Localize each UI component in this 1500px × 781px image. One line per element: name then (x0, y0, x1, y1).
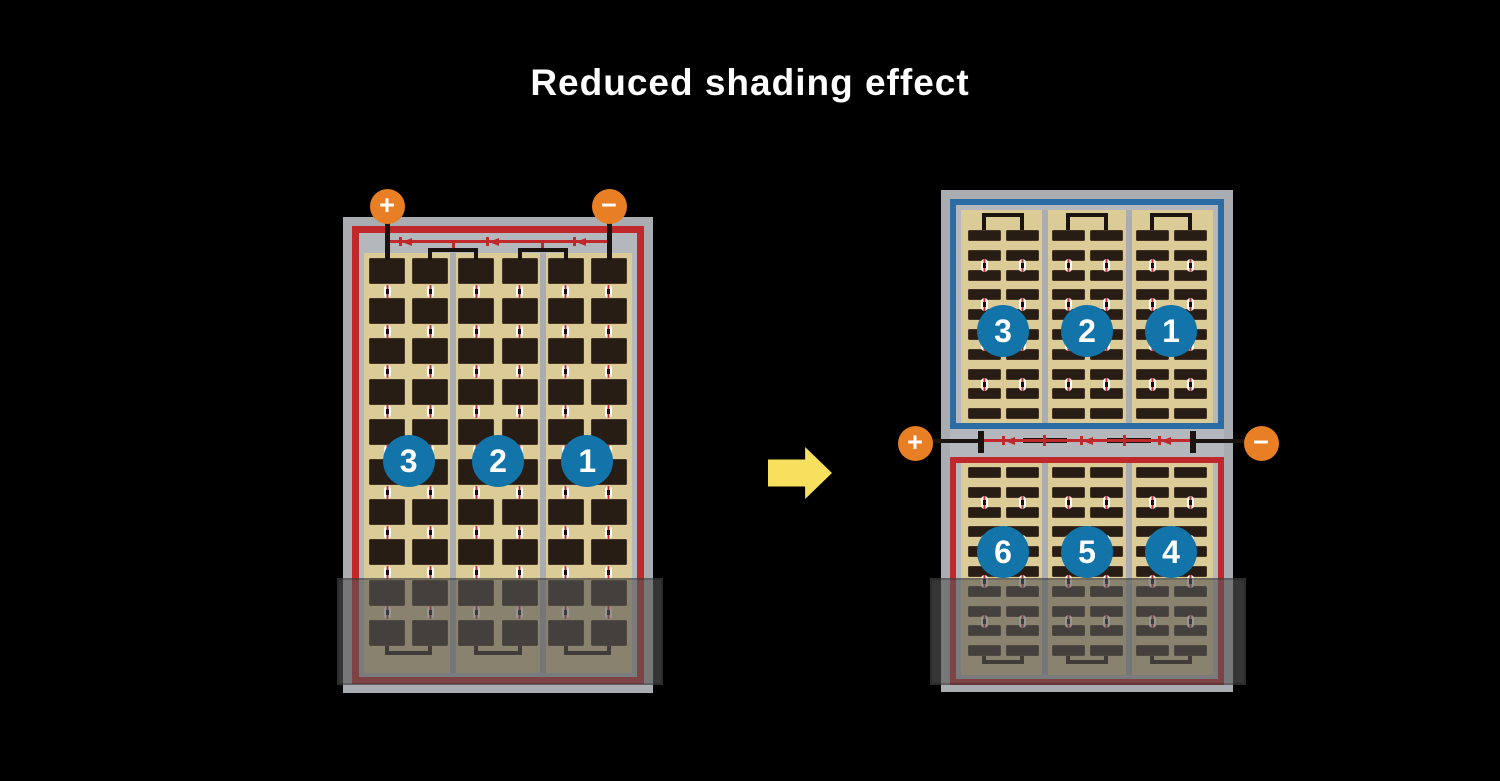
connector-core (1151, 500, 1154, 505)
solar-cell (412, 539, 448, 565)
cell-connector-icon (384, 486, 391, 499)
solar-cell (591, 379, 627, 405)
cell-connector-icon (562, 325, 569, 338)
cell-connector-icon (473, 486, 480, 499)
connector-core (1105, 382, 1108, 387)
busbar-top-bridge (1066, 213, 1108, 217)
connector-core (429, 530, 432, 535)
solar-cell (548, 338, 584, 364)
connector-core (429, 369, 432, 374)
connector-core (475, 369, 478, 374)
solar-cell (369, 499, 405, 525)
cell-connector-icon (1103, 496, 1110, 509)
solar-cell (1052, 408, 1085, 419)
cell-connector-icon (384, 325, 391, 338)
diode-triangle (576, 238, 586, 246)
connector-core (1189, 382, 1192, 387)
connector-core (429, 329, 432, 334)
connector-core (1189, 500, 1192, 505)
cell-connector-icon (562, 285, 569, 298)
solar-cell (1006, 408, 1039, 419)
solar-cell (548, 298, 584, 324)
negative-terminal-icon: − (1244, 426, 1279, 461)
cell-connector-icon (1065, 378, 1072, 391)
connector-core (1067, 302, 1070, 307)
cell-connector-icon (384, 285, 391, 298)
page-title: Reduced shading effect (0, 62, 1500, 104)
cell-connector-icon (516, 405, 523, 418)
solar-cell (502, 298, 538, 324)
cell-connector-icon (384, 405, 391, 418)
busbar-top-bridge-leg (428, 248, 432, 260)
cell-connector-icon (1065, 496, 1072, 509)
string-number-badge: 1 (1145, 305, 1197, 357)
solar-cell (502, 258, 538, 284)
cell-connector-icon (1103, 298, 1110, 311)
connector-core (1067, 263, 1070, 268)
negative-terminal-icon: − (592, 189, 627, 224)
cell-connector-icon (981, 259, 988, 272)
connector-core (607, 490, 610, 495)
string-number-badge: 5 (1061, 526, 1113, 578)
connector-core (564, 329, 567, 334)
connector-core (518, 369, 521, 374)
string-number-badge: 3 (383, 435, 435, 487)
positive-terminal-icon: + (370, 189, 405, 224)
connector-core (386, 530, 389, 535)
connector-core (475, 570, 478, 575)
connector-core (386, 289, 389, 294)
connector-core (386, 570, 389, 575)
solar-cell (1136, 467, 1169, 478)
busbar-top-bridge-leg (518, 248, 522, 260)
solar-cell (591, 338, 627, 364)
shading-overlay (930, 578, 1246, 685)
cell-connector-icon (1019, 496, 1026, 509)
connector-core (475, 289, 478, 294)
cell-connector-icon (516, 285, 523, 298)
cell-connector-icon (1019, 378, 1026, 391)
solar-cell (1174, 408, 1207, 419)
junction-end-bar (1190, 431, 1196, 453)
solar-cell (412, 298, 448, 324)
solar-cell (968, 467, 1001, 478)
solar-cell (458, 539, 494, 565)
string-number-badge: 1 (561, 435, 613, 487)
solar-cell (548, 499, 584, 525)
cell-connector-icon (1187, 496, 1194, 509)
solar-cell (369, 258, 405, 284)
cell-connector-icon (1019, 259, 1026, 272)
connector-core (983, 302, 986, 307)
connector-core (429, 409, 432, 414)
connector-core (1189, 263, 1192, 268)
connector-core (1105, 263, 1108, 268)
terminal-lead (930, 439, 982, 443)
solar-cell (369, 379, 405, 405)
solar-cell (1174, 230, 1207, 241)
diode-triangle (1005, 437, 1015, 445)
cell-connector-icon (981, 378, 988, 391)
connector-core (386, 329, 389, 334)
cell-connector-icon (516, 486, 523, 499)
busbar-top-bridge-leg (474, 248, 478, 260)
busbar-top-bridge-leg (564, 248, 568, 260)
connector-core (1151, 263, 1154, 268)
solar-cell (458, 298, 494, 324)
connector-core (475, 329, 478, 334)
solar-cell (458, 258, 494, 284)
cell-connector-icon (981, 496, 988, 509)
connector-core (1151, 302, 1154, 307)
solar-cell (1136, 230, 1169, 241)
connector-core (607, 369, 610, 374)
connector-core (564, 369, 567, 374)
cell-connector-icon (1065, 259, 1072, 272)
cell-connector-icon (605, 486, 612, 499)
diode-triangle (402, 238, 412, 246)
busbar-top-bridge (1150, 213, 1192, 217)
connector-core (564, 530, 567, 535)
solar-cell (412, 258, 448, 284)
cell-connector-icon (1019, 298, 1026, 311)
cell-connector-icon (516, 325, 523, 338)
connector-core (564, 409, 567, 414)
solar-cell (968, 230, 1001, 241)
cell-connector-icon (1187, 298, 1194, 311)
solar-cell (591, 539, 627, 565)
cell-connector-icon (473, 365, 480, 378)
cell-connector-icon (1149, 378, 1156, 391)
reduced-shading-diagram: Reduced shading effect 321+− 321654+− (0, 0, 1500, 781)
cell-connector-icon (605, 325, 612, 338)
diode-triangle (489, 238, 499, 246)
connector-core (983, 263, 986, 268)
solar-cell (1090, 230, 1123, 241)
cell-connector-icon (427, 405, 434, 418)
cell-connector-icon (516, 526, 523, 539)
connector-core (386, 490, 389, 495)
cell-connector-icon (473, 526, 480, 539)
diode-triangle (1083, 437, 1093, 445)
cell-connector-icon (1187, 259, 1194, 272)
connector-core (475, 409, 478, 414)
cell-connector-icon (473, 285, 480, 298)
solar-cell (1006, 467, 1039, 478)
connector-core (983, 500, 986, 505)
solar-cell (1006, 230, 1039, 241)
connector-core (518, 530, 521, 535)
cell-connector-icon (562, 365, 569, 378)
connector-core (564, 570, 567, 575)
connector-core (518, 289, 521, 294)
solar-cell (1174, 467, 1207, 478)
connector-core (1105, 500, 1108, 505)
cell-connector-icon (384, 365, 391, 378)
bypass-diode-icon (399, 237, 412, 246)
positive-terminal-icon: + (898, 426, 933, 461)
cell-connector-icon (1187, 378, 1194, 391)
string-number-badge: 2 (472, 435, 524, 487)
terminal-lead (385, 223, 390, 260)
solar-cell (369, 298, 405, 324)
cell-connector-icon (605, 365, 612, 378)
connector-core (983, 382, 986, 387)
solar-cell (1052, 467, 1085, 478)
string-number-badge: 6 (977, 526, 1029, 578)
cell-connector-icon (473, 325, 480, 338)
cell-connector-icon (427, 365, 434, 378)
connector-core (564, 490, 567, 495)
cell-connector-icon (1149, 496, 1156, 509)
solar-cell (412, 499, 448, 525)
diode-triangle (1161, 437, 1171, 445)
string-number-badge: 3 (977, 305, 1029, 357)
connector-core (1151, 382, 1154, 387)
solar-cell (412, 338, 448, 364)
connector-core (1021, 382, 1024, 387)
cell-connector-icon (1149, 259, 1156, 272)
cell-connector-icon (516, 365, 523, 378)
connector-core (564, 289, 567, 294)
connector-core (518, 329, 521, 334)
solar-cell (502, 539, 538, 565)
connector-core (607, 329, 610, 334)
cell-connector-icon (605, 405, 612, 418)
solar-cell (1136, 408, 1169, 419)
cell-connector-icon (427, 486, 434, 499)
connector-core (607, 409, 610, 414)
terminal-lead (607, 223, 612, 260)
section-divider (1126, 210, 1132, 423)
bypass-diode-icon (573, 237, 586, 246)
diode-bus-tick (1043, 435, 1046, 446)
connector-core (518, 570, 521, 575)
section-divider (1042, 210, 1048, 423)
cell-connector-icon (562, 486, 569, 499)
connector-core (518, 490, 521, 495)
solar-cell (591, 298, 627, 324)
connector-core (607, 570, 610, 575)
solar-cell (1090, 467, 1123, 478)
connector-core (1105, 302, 1108, 307)
junction-end-bar (978, 431, 984, 453)
bypass-diode-icon (1158, 436, 1171, 445)
busbar-top-bridge (982, 213, 1024, 217)
connector-core (386, 409, 389, 414)
connector-core (607, 289, 610, 294)
string-number-badge: 2 (1061, 305, 1113, 357)
solar-cell (548, 379, 584, 405)
connector-core (475, 530, 478, 535)
shading-overlay (337, 578, 663, 685)
connector-core (1021, 263, 1024, 268)
bypass-diode-icon (1080, 436, 1093, 445)
solar-cell (591, 499, 627, 525)
diode-bus-tick (1123, 435, 1126, 446)
connector-core (1021, 500, 1024, 505)
cell-connector-icon (605, 285, 612, 298)
solar-cell (548, 539, 584, 565)
solar-cell (502, 379, 538, 405)
connector-core (1021, 302, 1024, 307)
cell-connector-icon (605, 526, 612, 539)
solar-cell (458, 379, 494, 405)
busbar-top-bridge (518, 248, 568, 252)
solar-cell (1052, 230, 1085, 241)
connector-core (1067, 382, 1070, 387)
cell-connector-icon (384, 526, 391, 539)
cell-connector-icon (427, 325, 434, 338)
solar-cell (458, 338, 494, 364)
solar-cell (1090, 408, 1123, 419)
cell-connector-icon (473, 405, 480, 418)
solar-cell (369, 539, 405, 565)
busbar-top-bridge (428, 248, 478, 252)
string-number-badge: 4 (1145, 526, 1197, 578)
connector-core (429, 490, 432, 495)
bypass-diode-icon (486, 237, 499, 246)
cell-connector-icon (427, 526, 434, 539)
transform-arrow-icon (768, 447, 832, 499)
connector-core (607, 530, 610, 535)
connector-core (429, 289, 432, 294)
solar-cell (548, 258, 584, 284)
connector-core (475, 490, 478, 495)
solar-cell (591, 258, 627, 284)
connector-core (429, 570, 432, 575)
connector-core (518, 409, 521, 414)
terminal-lead (1192, 439, 1246, 443)
solar-cell (412, 379, 448, 405)
cell-connector-icon (427, 285, 434, 298)
connector-core (1067, 500, 1070, 505)
connector-core (386, 369, 389, 374)
connector-core (1189, 302, 1192, 307)
solar-cell (968, 408, 1001, 419)
solar-cell (458, 499, 494, 525)
cell-connector-icon (562, 526, 569, 539)
solar-cell (369, 338, 405, 364)
cell-connector-icon (1103, 378, 1110, 391)
solar-cell (502, 338, 538, 364)
cell-connector-icon (1103, 259, 1110, 272)
cell-connector-icon (562, 405, 569, 418)
solar-cell (502, 499, 538, 525)
bypass-diode-icon (1002, 436, 1015, 445)
